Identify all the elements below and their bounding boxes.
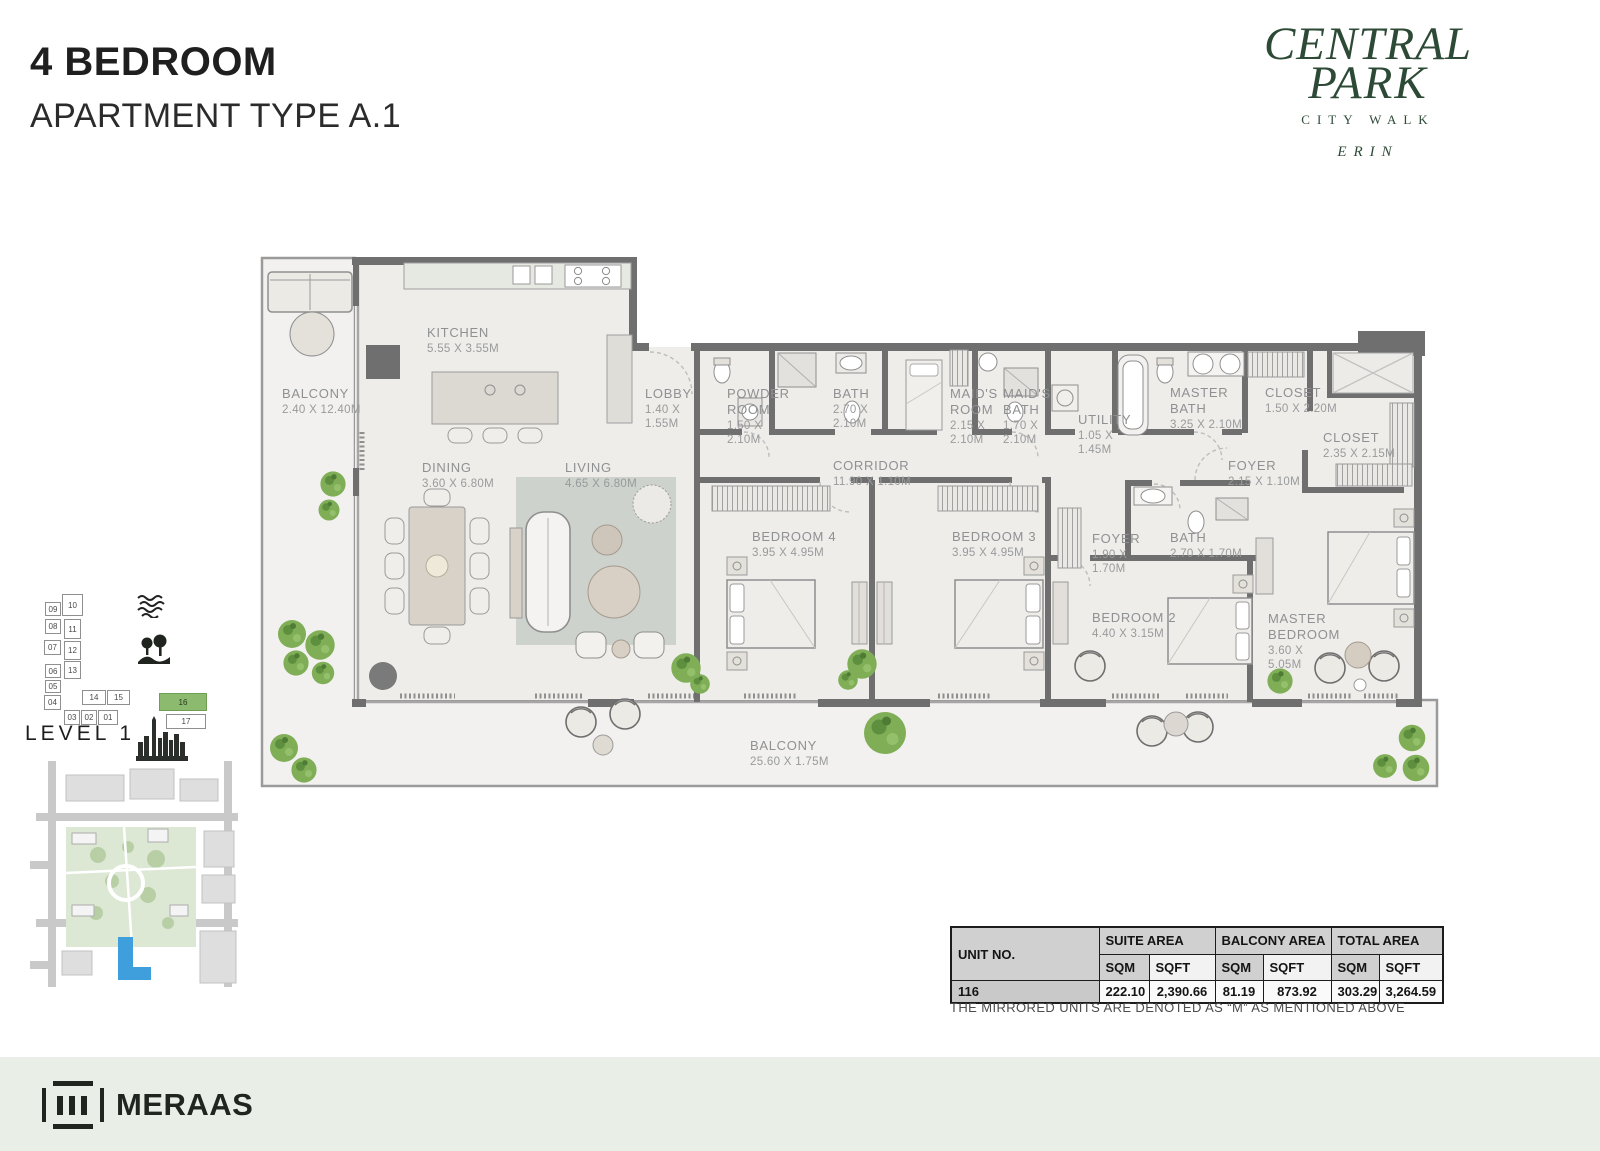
unit-cell-04: 04 xyxy=(44,695,61,710)
table-subheader-sqft: SQFT xyxy=(1149,954,1215,980)
table-subheader-sqft: SQFT xyxy=(1379,954,1443,980)
table-header-unit-no: UNIT NO. xyxy=(951,927,1099,981)
unit-cell-13: 13 xyxy=(64,661,81,679)
footer-band: MERAAS xyxy=(0,1057,1600,1151)
meraas-icon xyxy=(42,1079,104,1131)
level-label: LEVEL 1 xyxy=(25,722,135,746)
table-subheader-sqm: SQM xyxy=(1331,954,1379,980)
table-header-balcony-area: BALCONY AREA xyxy=(1215,927,1331,954)
table-header-suite-area: SUITE AREA xyxy=(1099,927,1215,954)
unit-cell-12: 12 xyxy=(64,641,81,660)
unit-cell-06: 06 xyxy=(45,664,61,678)
water-icon xyxy=(136,594,168,618)
unit-cell-07: 07 xyxy=(44,640,61,655)
unit-cell-15: 15 xyxy=(107,690,130,705)
park-icon xyxy=(138,634,170,664)
table-subheader-sqm: SQM xyxy=(1215,954,1263,980)
meraas-wordmark: MERAAS xyxy=(116,1087,253,1123)
unit-cell-05: 05 xyxy=(45,680,61,693)
unit-cell-10: 10 xyxy=(62,594,83,616)
table-subheader-sqm: SQM xyxy=(1099,954,1149,980)
unit-cell-16: 16 xyxy=(159,693,207,711)
areas-table: UNIT NO. SUITE AREA BALCONY AREA TOTAL A… xyxy=(950,926,1444,1004)
unit-cell-09: 09 xyxy=(45,602,61,616)
table-subheader-sqft: SQFT xyxy=(1263,954,1331,980)
unit-cell-14: 14 xyxy=(82,690,106,705)
site-park xyxy=(66,827,196,947)
unit-cell-08: 08 xyxy=(45,619,61,634)
table-header-total-area: TOTAL AREA xyxy=(1331,927,1443,954)
site-map xyxy=(28,755,246,993)
meraas-logo: MERAAS xyxy=(42,1079,253,1131)
unit-cell-11: 11 xyxy=(64,619,81,639)
mirrored-units-note: THE MIRRORED UNITS ARE DENOTED AS “M” AS… xyxy=(950,1000,1405,1015)
